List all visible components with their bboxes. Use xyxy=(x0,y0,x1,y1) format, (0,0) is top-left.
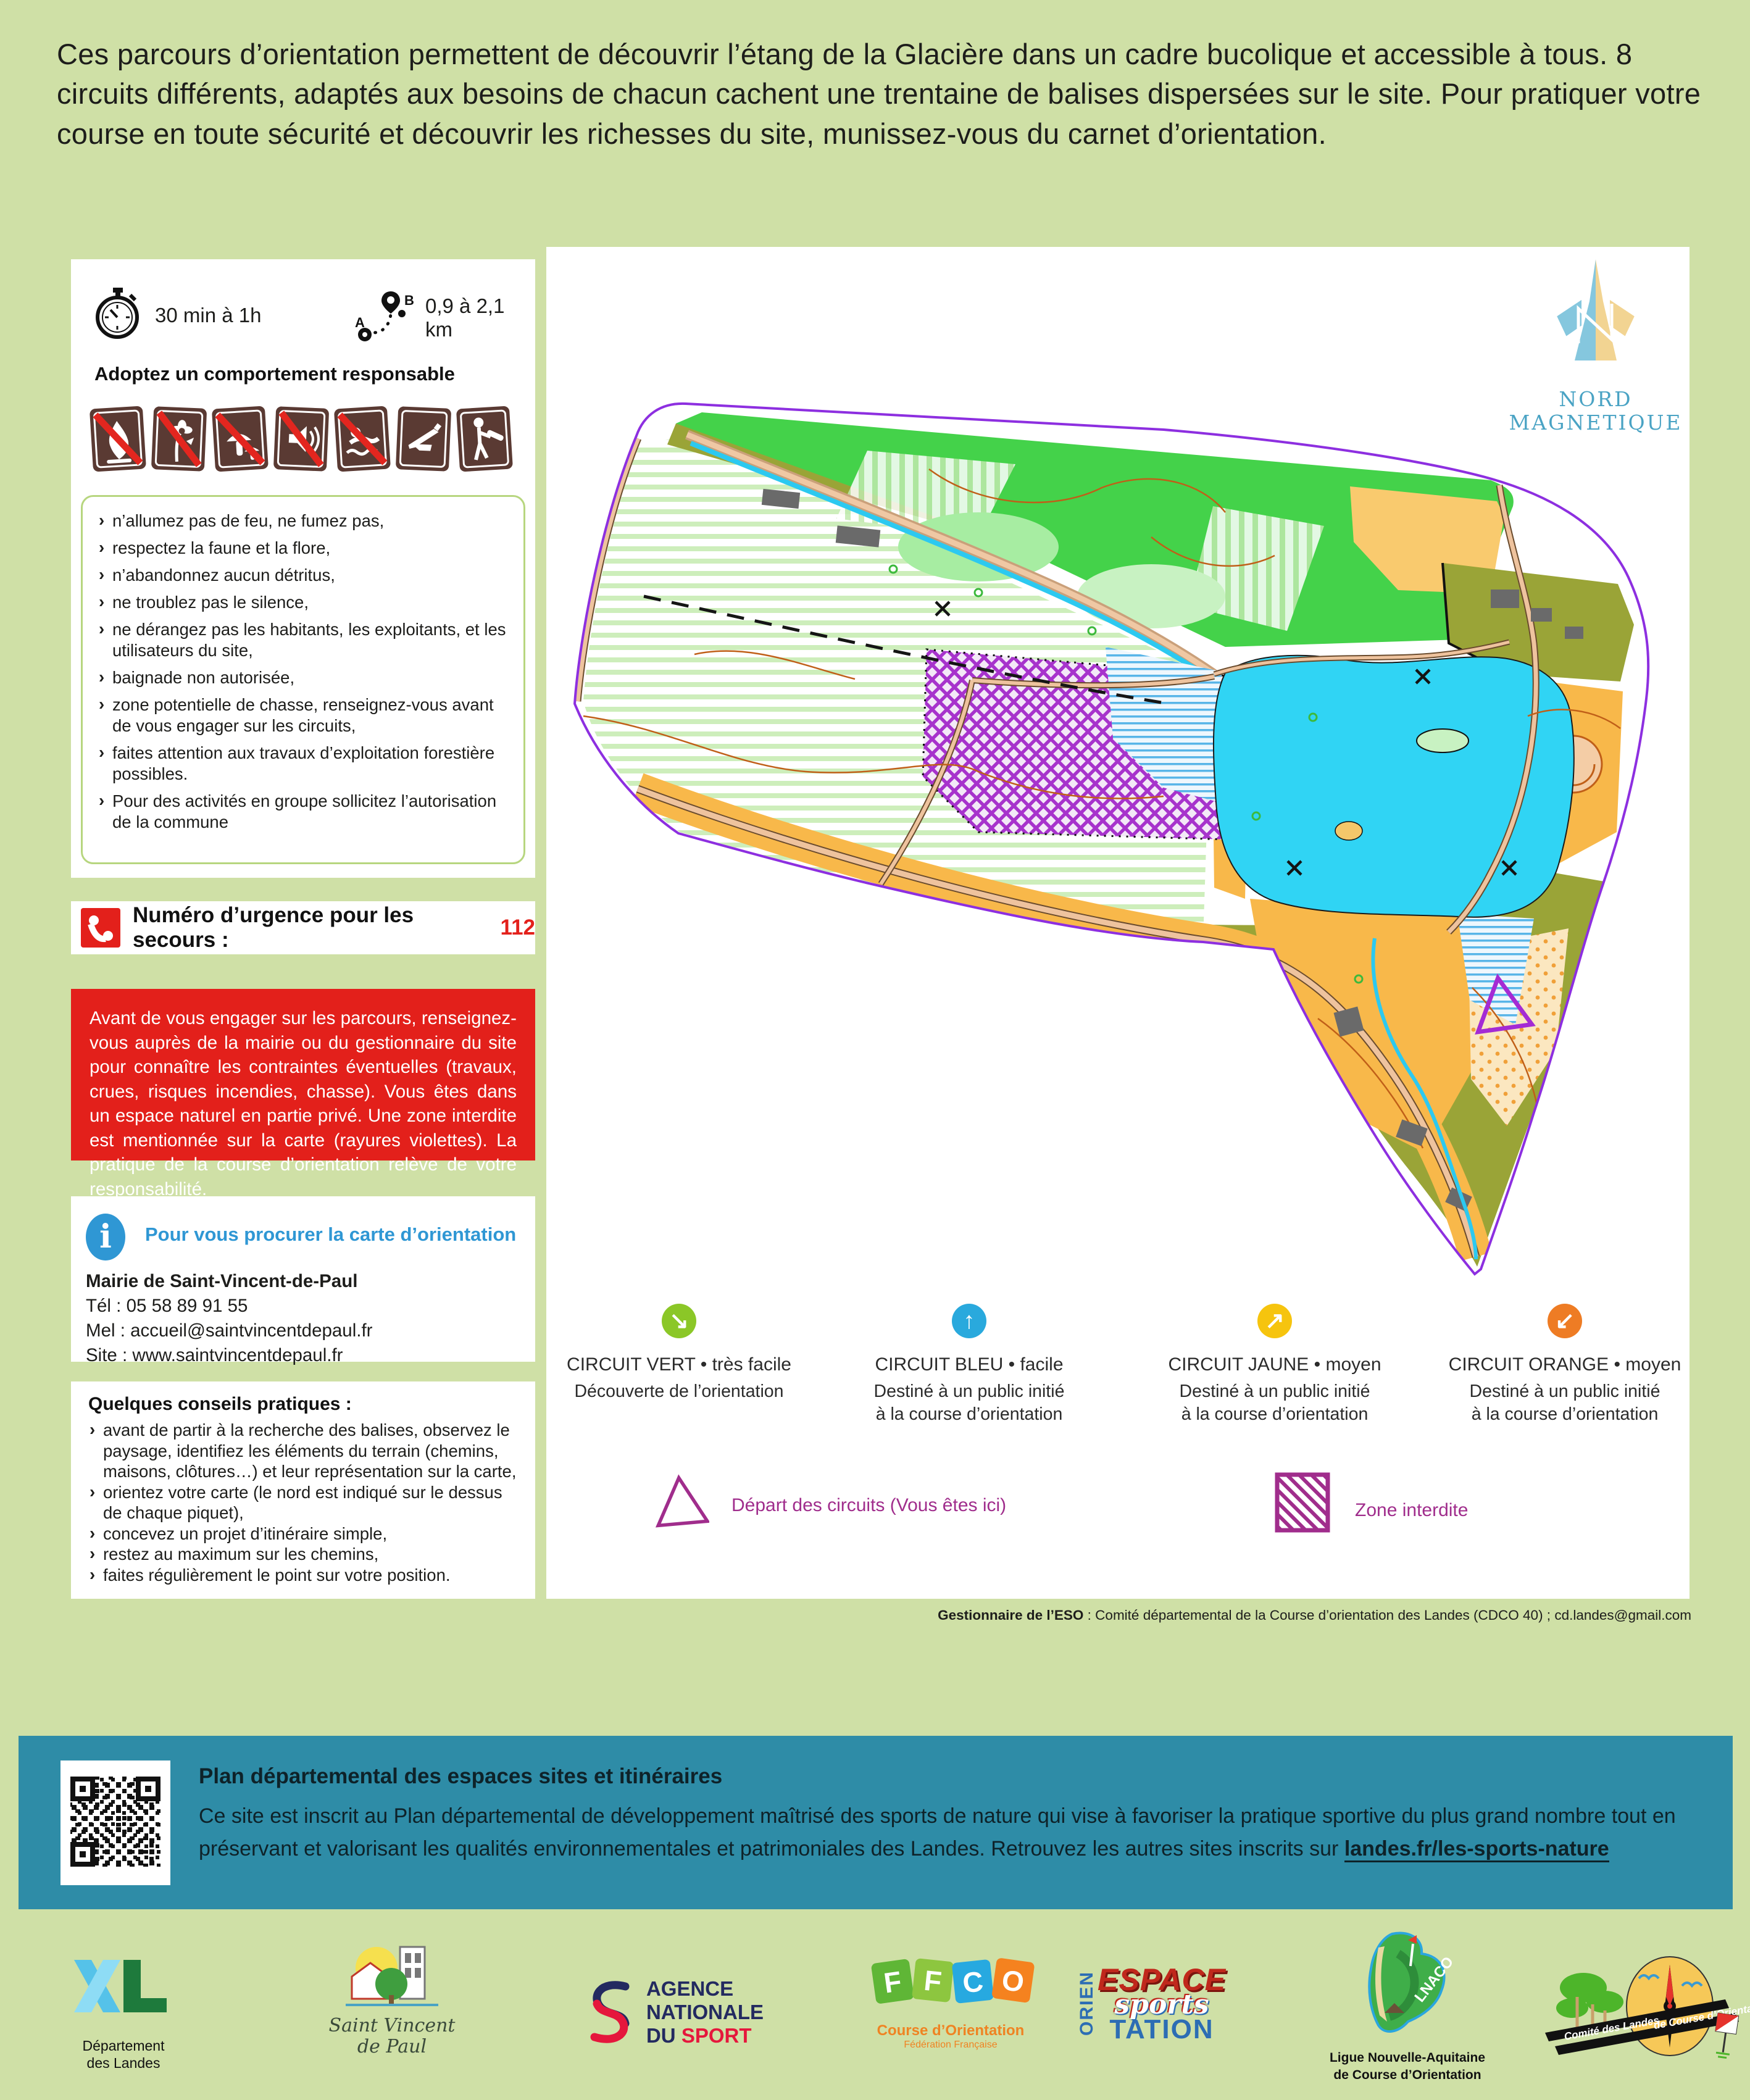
stats-row: 30 min à 1h A B 0,9 à 2,1 km xyxy=(93,286,523,346)
no-flower-picking-icon xyxy=(151,405,207,477)
rules-list: n’allumez pas de feu, ne fumez pas, resp… xyxy=(81,495,525,864)
circuit-bleu-legend: ↑ CIRCUIT BLEU • facile Destiné à un pub… xyxy=(836,1304,1102,1426)
ans-line-3: DU xyxy=(646,2024,681,2047)
qr-code xyxy=(60,1760,170,1885)
circuit-bleu-desc-1: Destiné à un public initié xyxy=(836,1380,1102,1403)
rule-item: respectez la faune et la flore, xyxy=(98,538,509,559)
rule-item: ne dérangez pas les habitants, les explo… xyxy=(98,619,509,661)
stopwatch-icon xyxy=(93,286,141,344)
warning-text: Avant de vous engager sur les parcours, … xyxy=(90,1006,517,1201)
circuit-jaune-icon: ↗ xyxy=(1257,1304,1292,1338)
svg-text:C: C xyxy=(961,1965,985,1999)
eso-orien-text: ORIEN xyxy=(1077,1962,1098,2045)
eso-tation-text: TATION xyxy=(1098,2014,1226,2045)
comite-landes-co-logo: Comité des Landes de Course d’Orientatio… xyxy=(1537,1954,1750,2068)
landes-sports-nature-link[interactable]: landes.fr/les-sports-nature xyxy=(1344,1837,1609,1862)
info-icon: i xyxy=(86,1214,125,1260)
circuit-vert-icon: ↘ xyxy=(662,1304,696,1338)
ffco-caption-1: Course d’Orientation xyxy=(858,2022,1043,2040)
town-hall-name: Mairie de Saint-Vincent-de-Paul xyxy=(86,1269,372,1294)
circuit-orange-legend: ↙ CIRCUIT ORANGE • moyen Destiné à un pu… xyxy=(1432,1304,1698,1426)
circuit-vert-title: CIRCUIT VERT • très facile xyxy=(546,1354,812,1375)
no-swimming-icon xyxy=(334,405,391,477)
ans-line-2: NATIONALE xyxy=(646,2001,764,2023)
route-a-to-b-icon: A B xyxy=(352,286,414,349)
cdco-emblem-icon: Comité des Landes de Course d’Orientatio… xyxy=(1540,1954,1750,2065)
tip-item: orientez votre carte (le nord est indiqu… xyxy=(88,1482,518,1523)
rule-item: n’abandonnez aucun détritus, xyxy=(98,565,509,586)
forestry-works-icon xyxy=(456,405,513,477)
north-label-1: NORD xyxy=(1559,387,1632,411)
circuit-vert-desc: Découverte de l’orientation xyxy=(546,1380,812,1403)
rule-item: n’allumez pas de feu, ne fumez pas, xyxy=(98,510,509,531)
ffco-caption-2: Fédération Française xyxy=(858,2040,1043,2051)
circuit-jaune-desc-1: Destiné à un public initié xyxy=(1142,1380,1407,1403)
forbidden-zone-icon xyxy=(1275,1472,1330,1536)
saint-vincent-de-paul-logo: Saint Vincent de Paul xyxy=(321,1938,463,2057)
circuit-bleu-title: CIRCUIT BLEU • facile xyxy=(836,1354,1102,1375)
departement-landes-logo: Département des Landes xyxy=(46,1954,201,2072)
start-legend-label: Départ des circuits (Vous êtes ici) xyxy=(731,1495,1006,1516)
behaviour-title: Adoptez un comportement responsable xyxy=(94,363,455,385)
duration-value: 30 min à 1h xyxy=(155,304,261,327)
warning-panel: Avant de vous engager sur les parcours, … xyxy=(71,989,535,1160)
circuit-jaune-desc-2: à la course d’orientation xyxy=(1142,1403,1407,1426)
rule-item: faites attention aux travaux d’exploitat… xyxy=(98,743,509,785)
distance-value: 0,9 à 2,1 km xyxy=(425,294,523,341)
tips-panel: Quelques conseils pratiques : avant de p… xyxy=(71,1381,535,1599)
circuit-orange-icon: ↙ xyxy=(1548,1304,1582,1338)
svg-text:A: A xyxy=(355,315,365,330)
lnaco-caption-2: de Course d’Orientation xyxy=(1321,2067,1494,2084)
xl-caption-2: des Landes xyxy=(46,2054,201,2072)
tip-item: restez au maximum sur les chemins, xyxy=(88,1544,518,1565)
banner-body: Ce site est inscrit au Plan départementa… xyxy=(199,1800,1699,1865)
tips-title: Quelques conseils pratiques : xyxy=(88,1394,518,1415)
svp-caption-2: de Paul xyxy=(321,2036,463,2057)
map-purchase-panel: i Pour vous procurer la carte d’orientat… xyxy=(71,1196,535,1362)
circuit-orange-desc-2: à la course d’orientation xyxy=(1432,1403,1698,1426)
magnetic-north-icon: NORD MAGNETIQUE xyxy=(1509,259,1683,435)
site-manager-line: Gestionnaire de l’ESO : Comité départeme… xyxy=(938,1607,1691,1623)
svg-text:O: O xyxy=(1000,1964,1027,1998)
circuit-orange-desc-1: Destiné à un public initié xyxy=(1432,1380,1698,1403)
lnaco-logo: LNACO Ligue Nouvelle-Aquitaine de Course… xyxy=(1321,1929,1494,2084)
ans-line-1: AGENCE xyxy=(646,1977,733,2000)
phone-icon xyxy=(81,908,120,948)
emergency-label: Numéro d’urgence pour les secours : xyxy=(133,903,492,952)
no-mushroom-picking-icon xyxy=(212,405,269,477)
emergency-number: 112 xyxy=(501,915,535,940)
pictogram-row xyxy=(90,405,522,477)
manager-text: : Comité départemental de la Course d’or… xyxy=(1083,1607,1691,1623)
svg-text:B: B xyxy=(404,293,414,308)
manager-label: Gestionnaire de l’ESO xyxy=(938,1607,1083,1623)
orienteering-info-panel: Ces parcours d’orientation permettent de… xyxy=(0,0,1750,2100)
email-line: Mel : accueil@saintvincentdepaul.fr xyxy=(86,1319,372,1343)
lnaco-caption-1: Ligue Nouvelle-Aquitaine xyxy=(1321,2049,1494,2067)
behaviour-panel: 30 min à 1h A B 0,9 à 2,1 km Ado xyxy=(71,259,535,878)
banner-title: Plan départemental des espaces sites et … xyxy=(199,1764,722,1789)
orienteering-map: NORD MAGNETIQUE xyxy=(546,247,1690,1296)
circuit-bleu-desc-2: à la course d’orientation xyxy=(836,1403,1102,1426)
circuit-jaune-legend: ↗ CIRCUIT JAUNE • moyen Destiné à un pub… xyxy=(1142,1304,1407,1426)
north-label-2: MAGNETIQUE xyxy=(1509,410,1683,435)
lnaco-region-icon: LNACO xyxy=(1349,1929,1466,2046)
hunting-icon xyxy=(395,405,452,477)
distance-stat: A B 0,9 à 2,1 km xyxy=(352,286,523,349)
intro-text: Ces parcours d’orientation permettent de… xyxy=(57,35,1717,154)
tip-item: concevez un projet d’itinéraire simple, xyxy=(88,1523,518,1544)
ffco-tiles-icon: F F C O xyxy=(864,1948,1037,2015)
rule-item: ne troublez pas le silence, xyxy=(98,592,509,613)
svg-text:F: F xyxy=(922,1964,943,1998)
xl-caption-1: Département xyxy=(46,2037,201,2054)
espace-sports-orientation-logo: ORIEN ESPACE sports TATION xyxy=(1074,1962,1228,2045)
svp-caption-1: Saint Vincent xyxy=(321,2015,463,2036)
xl-logo-icon xyxy=(62,1954,185,2034)
tip-item: avant de partir à la recherche des balis… xyxy=(88,1420,518,1482)
circuit-vert-legend: ↘ CIRCUIT VERT • très facile Découverte … xyxy=(546,1304,812,1403)
no-fire-icon xyxy=(90,405,146,477)
agence-nationale-sport-logo: AGENCE NATIONALE DU SPORT xyxy=(556,1975,790,2049)
rule-item: baignade non autorisée, xyxy=(98,667,509,688)
departmental-plan-banner: Plan départemental des espaces sites et … xyxy=(19,1736,1733,1909)
circuit-bleu-icon: ↑ xyxy=(952,1304,986,1338)
duration-stat: 30 min à 1h xyxy=(93,286,261,344)
ans-s-icon xyxy=(582,1975,638,2049)
info-title: Pour vous procurer la carte d’orientatio… xyxy=(145,1223,516,1246)
village-icon xyxy=(327,1938,457,2012)
forbidden-zone-label: Zone interdite xyxy=(1355,1500,1468,1521)
no-noise-icon xyxy=(273,405,330,477)
circuit-orange-title: CIRCUIT ORANGE • moyen xyxy=(1432,1354,1698,1375)
emergency-panel: Numéro d’urgence pour les secours : 112 xyxy=(71,901,535,954)
phone-line: Tél : 05 58 89 91 55 xyxy=(86,1294,372,1319)
tip-item: faites régulièrement le point sur votre … xyxy=(88,1565,518,1586)
rule-item: Pour des activités en groupe sollicitez … xyxy=(98,791,509,833)
rule-item: zone potentielle de chasse, renseignez-v… xyxy=(98,694,509,736)
ans-line-4: SPORT xyxy=(681,2024,752,2047)
website-line: Site : www.saintvincentdepaul.fr xyxy=(86,1343,372,1368)
circuit-jaune-title: CIRCUIT JAUNE • moyen xyxy=(1142,1354,1407,1375)
orienteering-map-panel: NORD MAGNETIQUE ↘ CIRCUIT VERT • très fa… xyxy=(546,247,1690,1599)
ffco-logo: F F C O Course d’Orientation Fédération … xyxy=(858,1948,1043,2051)
start-legend-icon xyxy=(652,1474,709,1531)
